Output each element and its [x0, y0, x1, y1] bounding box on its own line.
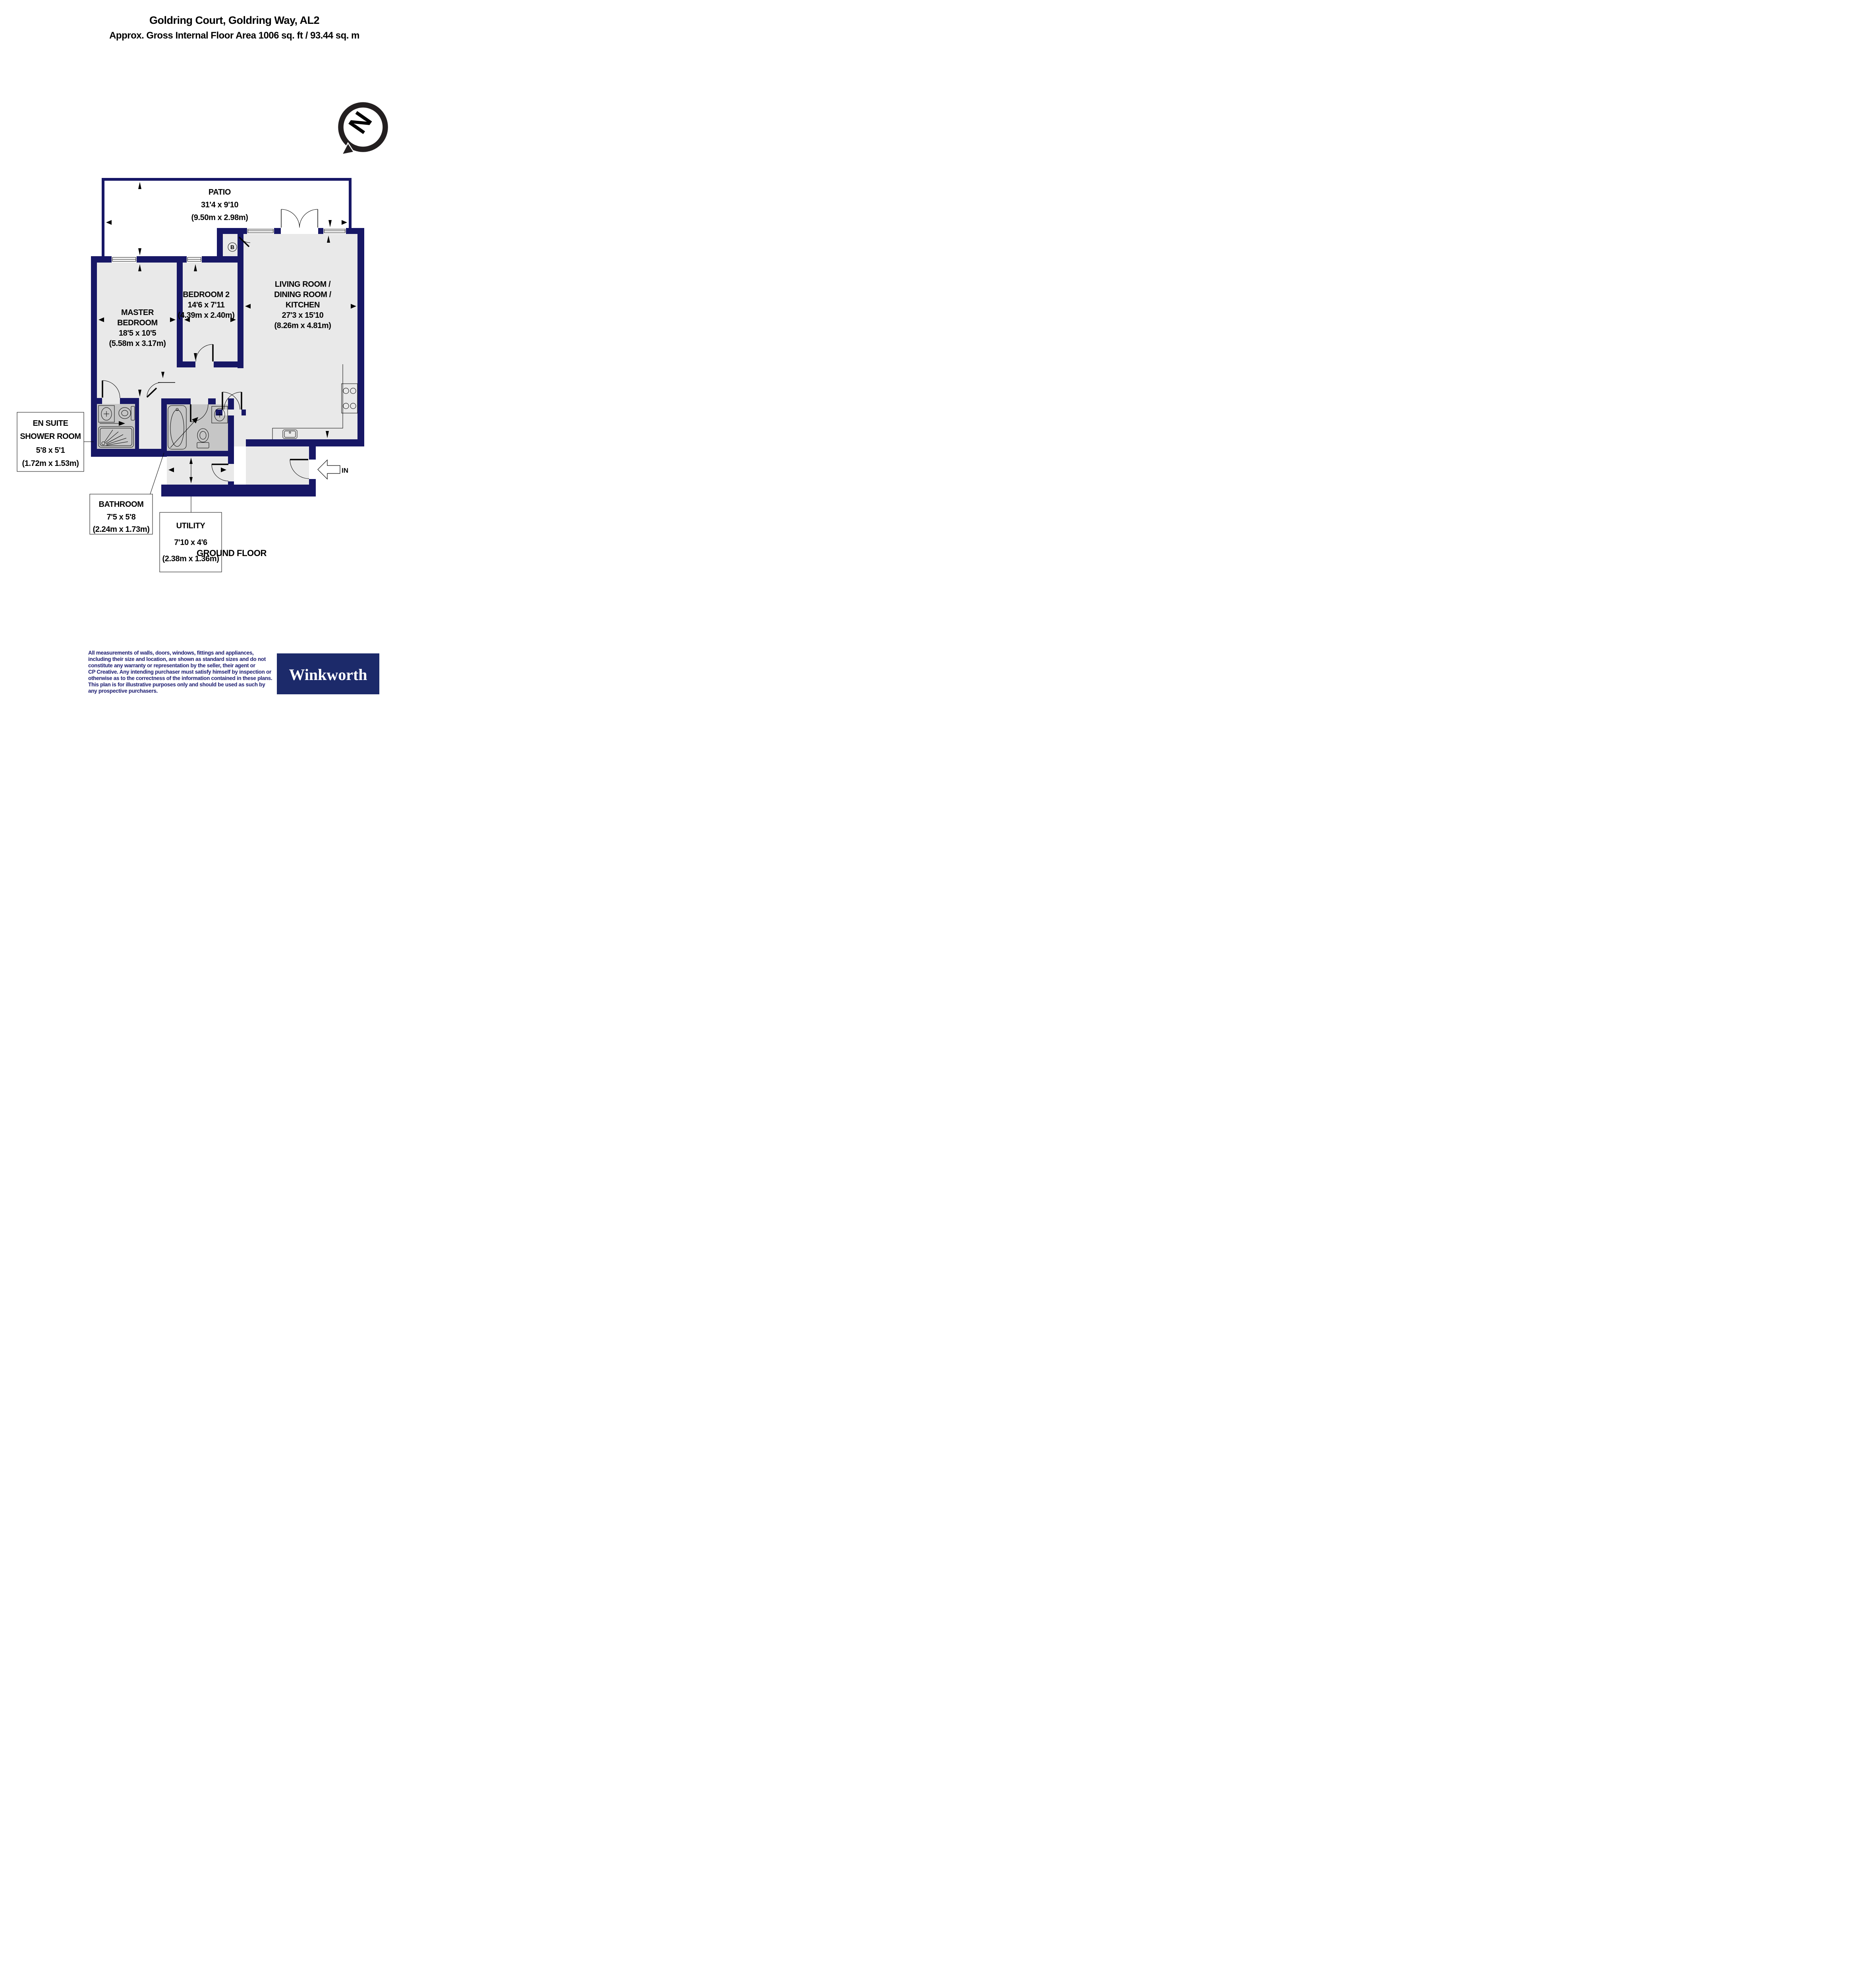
wall-segment	[161, 485, 316, 496]
room-name: LIVING ROOM /	[275, 280, 331, 289]
wall-segment	[357, 228, 364, 446]
logo-text: Winkworth	[289, 666, 367, 684]
room-name: BATHROOM	[99, 500, 143, 509]
disclaimer-block: All measurements of walls, doors, window…	[88, 650, 272, 694]
room-name: PATIO	[209, 188, 231, 197]
room-metric: (1.72m x 1.53m)	[22, 459, 79, 468]
hallway-floor-2	[139, 382, 183, 400]
disclaimer-line: This plan is for illustrative purposes o…	[88, 682, 265, 688]
room-imperial: 7'10 x 4'6	[174, 538, 207, 547]
ensuite-callout: EN SUITE SHOWER ROOM 5'8 x 5'1 (1.72m x …	[17, 412, 94, 471]
room-imperial: 31'4 x 9'10	[201, 201, 238, 209]
door-gap	[222, 410, 242, 415]
patio-french-door-icon	[281, 209, 318, 228]
disclaimer-line: any prospective purchasers.	[88, 688, 158, 694]
room-name: DINING ROOM /	[274, 290, 332, 299]
disclaimer-line: including their size and location, are s…	[88, 656, 266, 662]
door-gap	[195, 361, 214, 367]
room-imperial: 5'8 x 5'1	[36, 446, 65, 455]
room-name: SHOWER ROOM	[20, 432, 81, 441]
wall-segment	[349, 178, 352, 228]
room-name: UTILITY	[176, 522, 206, 530]
room-metric: (5.58m x 3.17m)	[109, 339, 166, 348]
entrance-hall-floor	[246, 446, 309, 485]
disclaimer-line: CP Creative. Any intending purchaser mus…	[88, 669, 272, 675]
wall-segment	[91, 256, 97, 457]
door-gap	[102, 398, 120, 404]
arrow-up-icon	[138, 182, 141, 189]
arrow-right-icon	[342, 220, 347, 225]
room-name: MASTER	[121, 308, 154, 317]
wall-segment	[135, 398, 139, 449]
page-subtitle: Approx. Gross Internal Floor Area 1006 s…	[109, 30, 359, 41]
wall-segment	[238, 234, 243, 368]
wall-segment	[246, 439, 364, 446]
wall-segment	[91, 449, 161, 457]
arrow-down-icon	[328, 220, 332, 227]
door-gap	[228, 464, 234, 481]
room-name: BEDROOM	[117, 319, 158, 327]
page-title: Goldring Court, Goldring Way, AL2	[149, 14, 319, 26]
disclaimer-line: otherwise as to the correctness of the i…	[88, 675, 272, 681]
room-metric: (2.24m x 1.73m)	[93, 525, 150, 534]
room-imperial: 27'3 x 15'10	[282, 311, 324, 320]
french-door-gap	[281, 228, 318, 234]
room-metric: (4.39m x 2.40m)	[178, 311, 235, 320]
room-metric: (9.50m x 2.98m)	[191, 213, 248, 222]
corridor-floor	[139, 398, 161, 449]
arrow-down-icon	[138, 248, 141, 255]
disclaimer-line: constitute any warranty or representatio…	[88, 663, 256, 668]
room-imperial: 18'5 x 10'5	[119, 329, 156, 338]
arrow-left-icon	[106, 220, 112, 225]
entrance-in-arrow: IN	[318, 460, 348, 479]
room-name: KITCHEN	[286, 301, 320, 309]
room-metric: (8.26m x 4.81m)	[274, 321, 331, 330]
utility-floor	[167, 456, 228, 485]
wall-segment	[309, 479, 316, 485]
in-arrow-icon	[318, 460, 340, 479]
entrance-label: IN	[342, 467, 348, 474]
room-name: EN SUITE	[33, 419, 68, 428]
boiler-label: B	[230, 244, 234, 250]
utility-callout: UTILITY 7'10 x 4'6 (2.38m x 1.36m)	[160, 496, 222, 572]
floorplan-canvas: Goldring Court, Goldring Way, AL2 Approx…	[0, 0, 469, 703]
wall-segment	[161, 398, 167, 457]
passage-floor	[234, 415, 246, 446]
wall-segment	[102, 178, 352, 181]
room-imperial: 14'6 x 7'11	[188, 301, 225, 309]
wall-segment	[161, 451, 234, 456]
disclaimer-line: All measurements of walls, doors, window…	[88, 650, 254, 656]
room-name: BEDROOM 2	[183, 290, 230, 299]
door-gap	[191, 398, 208, 404]
wall-segment	[102, 178, 104, 256]
bathroom-callout: BATHROOM 7'5 x 5'8 (2.24m x 1.73m)	[90, 453, 164, 534]
north-compass-icon: N	[341, 105, 385, 155]
winkworth-logo: Winkworth	[277, 653, 379, 694]
wall-segment	[309, 446, 316, 460]
room-imperial: 7'5 x 5'8	[107, 513, 136, 522]
floorplan-page: Goldring Court, Goldring Way, AL2 Approx…	[0, 0, 469, 703]
floor-name-label: GROUND FLOOR	[197, 548, 267, 558]
patio-label: PATIO 31'4 x 9'10 (9.50m x 2.98m)	[191, 188, 248, 222]
